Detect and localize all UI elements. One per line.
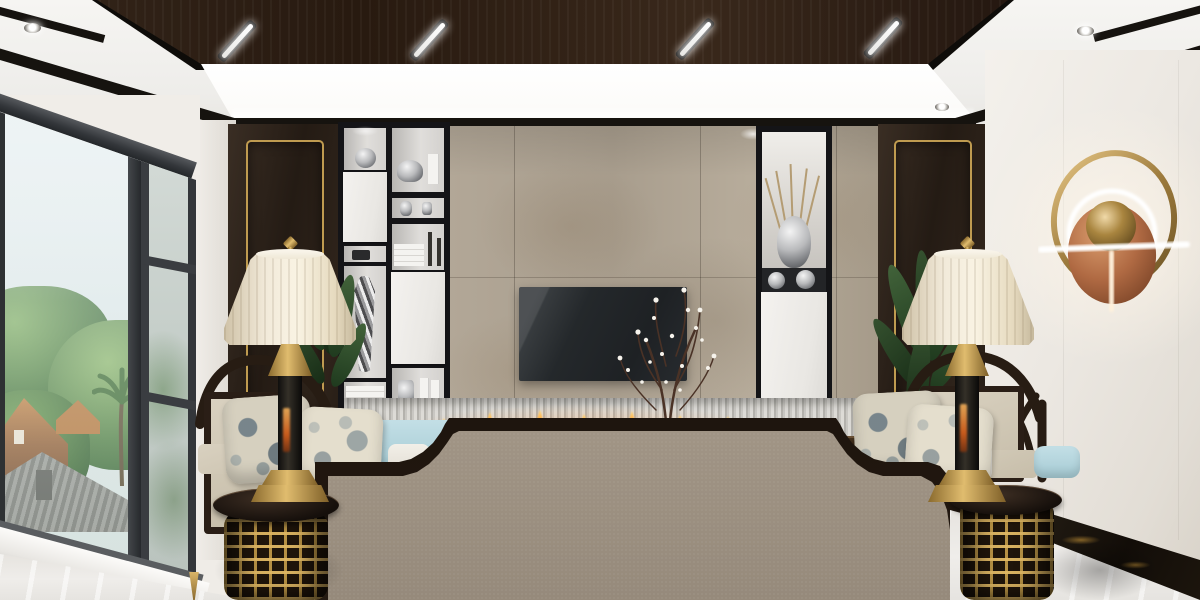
lamp-base-lower <box>928 485 1006 502</box>
wall-sconce <box>1038 138 1193 328</box>
white-books-stack <box>394 244 424 266</box>
lamp-column <box>955 376 979 472</box>
cove-glow <box>232 106 974 118</box>
lamp-base-lower <box>251 485 329 502</box>
candlestick-decor <box>437 238 441 266</box>
window-frame-left <box>0 100 5 560</box>
silver-mercury-vase <box>777 216 811 268</box>
downlight-icon <box>935 103 949 111</box>
niche-spotlight-glow <box>352 126 378 136</box>
casement-frame-bar <box>141 158 149 574</box>
glass-sphere-decor <box>355 148 376 168</box>
cabinet-door-white <box>343 172 387 242</box>
small-vase-decor <box>400 201 412 216</box>
window-mullion <box>128 140 141 580</box>
lamp-column-fire-reflection <box>960 404 967 452</box>
living-room-photo <box>0 0 1200 600</box>
cabinet-door-white <box>391 272 445 364</box>
panel-seam <box>514 126 515 440</box>
lamp-base-upper <box>939 470 995 485</box>
niche-white-cabinet <box>761 292 827 408</box>
white-book <box>428 154 439 184</box>
silver-orb-decor <box>768 272 785 289</box>
table-shadow <box>1040 540 1160 600</box>
candlestick-decor <box>428 232 432 266</box>
lamp-shade-top <box>256 249 324 259</box>
lamp-base-upper <box>262 470 318 485</box>
lamp-column <box>278 376 302 472</box>
lamp-shade-top <box>934 249 1002 259</box>
sconce-led-stem <box>1109 250 1114 312</box>
panel-seam <box>836 126 837 440</box>
seat-cushion-blue <box>1034 446 1080 478</box>
lamp-column-fire-reflection <box>283 408 290 452</box>
side-table-right-lattice-base <box>960 500 1054 600</box>
downlight-icon <box>24 23 41 33</box>
small-glass-decor <box>422 202 432 215</box>
downlight-icon <box>1077 26 1094 36</box>
small-decor-object <box>352 250 370 260</box>
silver-orb-decor <box>796 270 815 289</box>
silver-teapot-decor <box>397 160 423 182</box>
side-table-left-lattice-base <box>224 512 328 600</box>
